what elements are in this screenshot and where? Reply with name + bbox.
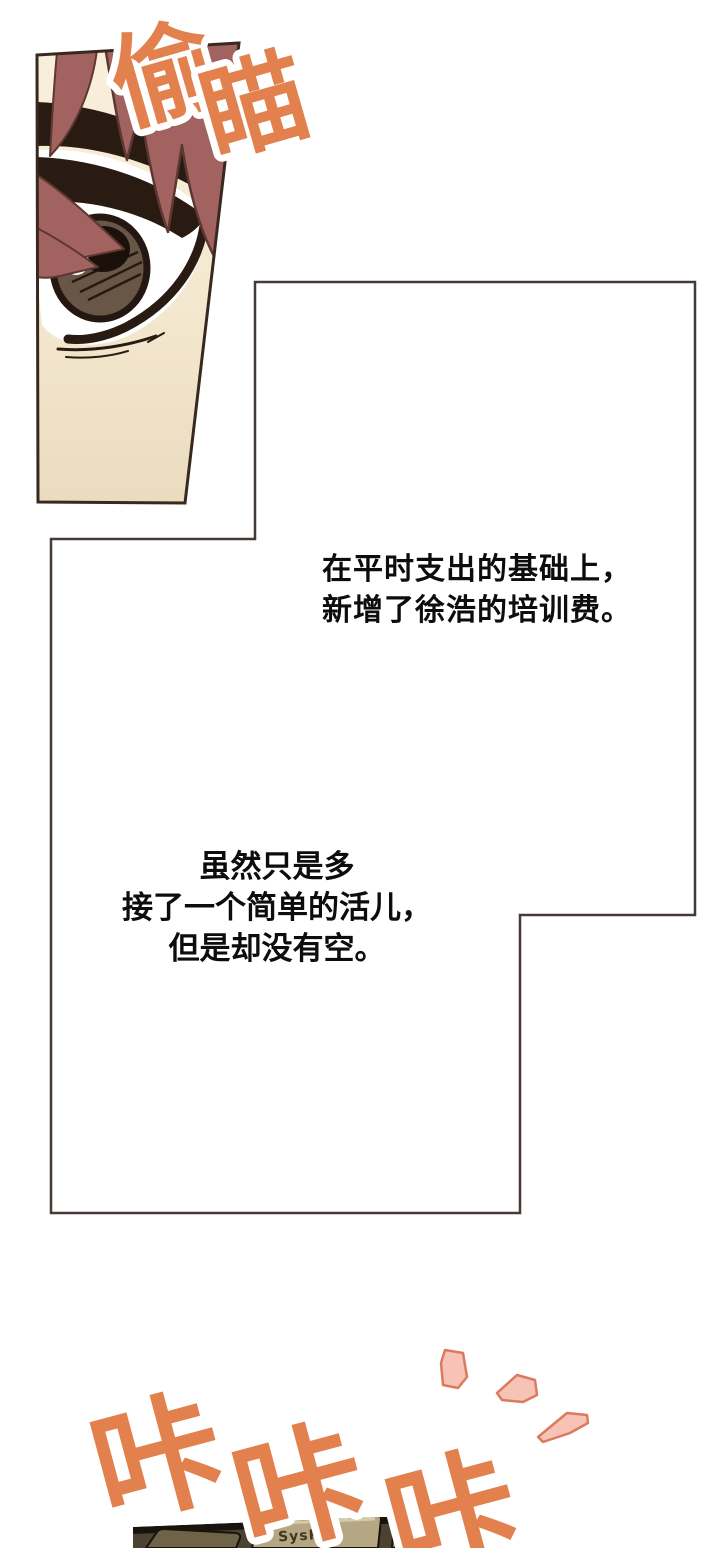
emphasis-mark-icon — [538, 1413, 588, 1442]
comic-page: 偷 瞄 SysRq 咔 咔 咔 在平时支出的基础上， 新增了徐浩的培训费 — [0, 0, 720, 1548]
sfx-typing-char-3: 咔 — [372, 1428, 534, 1548]
narration-line: 虽然只是多 — [121, 847, 433, 888]
narration-line: 但是却没有空。 — [121, 929, 433, 970]
narration-line: 接了一个简单的活儿， — [121, 888, 433, 929]
narration-line: 在平时支出的基础上， — [322, 549, 632, 590]
emphasis-marks-icon — [441, 1350, 588, 1442]
narration-line: 新增了徐浩的培训费。 — [322, 590, 632, 631]
sfx-typing-char-2: 咔 — [219, 1401, 381, 1548]
comic-artwork: 偷 瞄 SysRq 咔 咔 咔 — [0, 0, 720, 1548]
narration-block-2: 虽然只是多 接了一个简单的活儿， 但是却没有空。 — [121, 847, 433, 970]
emphasis-mark-icon — [441, 1350, 467, 1388]
narration-block-1: 在平时支出的基础上， 新增了徐浩的培训费。 — [322, 549, 632, 631]
sfx-typing-char-1: 咔 — [77, 1371, 239, 1548]
emphasis-mark-icon — [497, 1375, 537, 1402]
sfx-typing: 咔 咔 咔 — [77, 1371, 534, 1548]
